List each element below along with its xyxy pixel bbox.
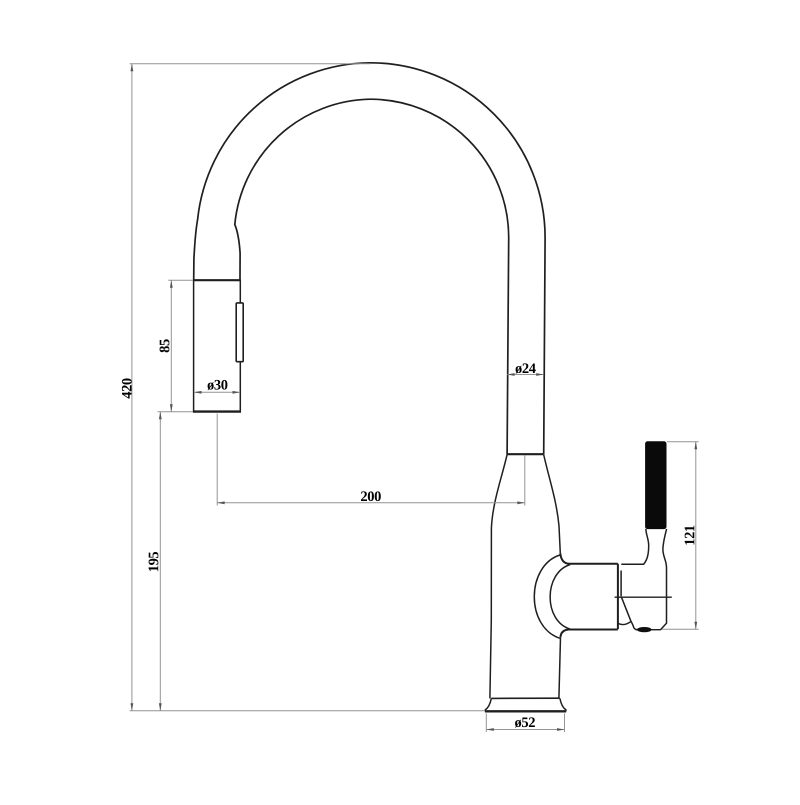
svg-text:121: 121 xyxy=(682,525,698,546)
svg-text:ø30: ø30 xyxy=(207,378,228,394)
svg-text:420: 420 xyxy=(120,378,136,399)
svg-text:85: 85 xyxy=(157,339,173,353)
svg-text:195: 195 xyxy=(146,552,162,573)
svg-text:ø52: ø52 xyxy=(515,715,536,731)
svg-text:ø24: ø24 xyxy=(515,361,536,377)
svg-text:200: 200 xyxy=(360,489,381,505)
